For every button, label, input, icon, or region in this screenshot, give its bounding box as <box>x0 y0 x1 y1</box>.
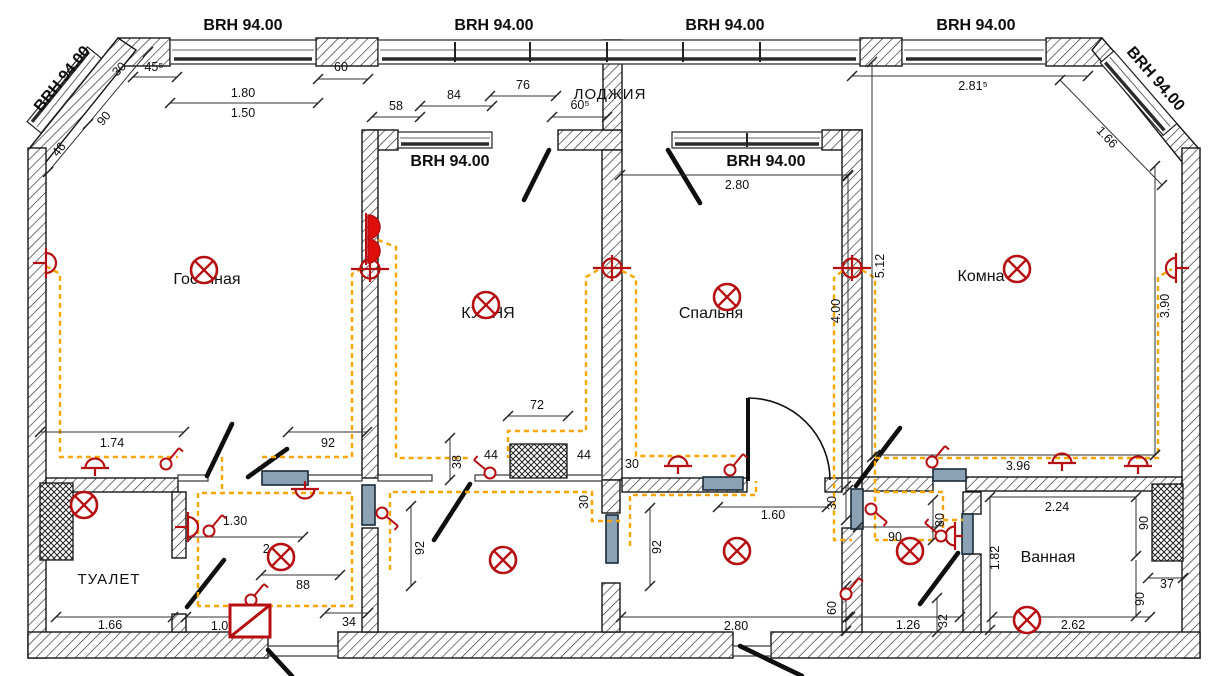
dim-label: 34 <box>342 615 356 629</box>
brh-label-top-3: BRH 94.00 <box>685 17 764 34</box>
dim-label: 60⁵ <box>570 98 589 112</box>
door-leaf-kitchen-loggia <box>524 150 549 200</box>
double-socket-icon <box>593 255 631 281</box>
dim-label: 1.60 <box>761 508 785 522</box>
ceiling-light-icon <box>714 284 740 310</box>
threshold-room <box>933 469 966 481</box>
switch-icon <box>725 454 748 476</box>
dim-label: 3.96 <box>1006 459 1030 473</box>
shaft-toilet <box>40 483 73 560</box>
dim-label: 84 <box>447 88 461 102</box>
dim-label: 44 <box>484 448 498 462</box>
dim-label: 80 <box>933 513 947 527</box>
door-arc-bedroom <box>748 398 830 480</box>
room-label-toilet: ТУАЛЕТ <box>77 571 140 588</box>
surface-socket-icon <box>1048 454 1076 472</box>
ceiling-light-icon <box>490 547 516 573</box>
door-leaf-bedroom-loggia <box>668 150 700 203</box>
dim-label: 60 <box>825 601 839 615</box>
ceiling-light-icon <box>724 538 750 564</box>
dim-label: 90 <box>94 109 114 129</box>
ceiling-light-icon <box>473 292 499 318</box>
dim-label: 1.26 <box>896 618 920 632</box>
window-room-top <box>902 40 1046 64</box>
dim-label: 32 <box>936 614 950 628</box>
dim-label: 1.80 <box>231 86 255 100</box>
dim-label: 1.82 <box>988 546 1002 570</box>
window-bedroom-loggia <box>672 132 822 148</box>
room-label-room: Комна <box>958 268 1005 285</box>
dim-label: 2.24 <box>1045 500 1069 514</box>
window-loggia-glazing <box>378 40 860 64</box>
threshold-bedroom <box>703 477 743 490</box>
dim-label: 30 <box>825 496 839 510</box>
dim-label: 1.66 <box>1094 124 1121 151</box>
surface-socket-icon <box>664 457 692 475</box>
dim-label: 5.12 <box>873 254 887 278</box>
surface-socket-icon <box>81 459 109 477</box>
dim-label: 4.00 <box>829 299 843 323</box>
dim-label: 2.62 <box>1061 618 1085 632</box>
brh-label-loggia-left: BRH 94.00 <box>410 153 489 170</box>
ceiling-light-icon <box>1014 607 1040 633</box>
threshold-hall1 <box>362 485 375 525</box>
brh-label-top-1: BRH 94.00 <box>203 17 282 34</box>
switch-icon <box>246 584 269 606</box>
ceiling-light-icon <box>268 544 294 570</box>
double-socket-icon <box>833 255 871 281</box>
dim-label: 72 <box>530 398 544 412</box>
dim-label: 60 <box>334 60 348 74</box>
door-leaf-toilet <box>187 560 224 607</box>
threshold-living <box>262 471 308 485</box>
window-kitchen-loggia <box>398 132 492 148</box>
dim-label: 58 <box>389 99 403 113</box>
dim-label: 76 <box>516 78 530 92</box>
dim-label: 2.81⁵ <box>958 79 988 93</box>
room-label-bath: Ванная <box>1021 549 1076 566</box>
floor-plan-canvas: BRH 94.00 BRH 94.00 BRH 94.00 BRH 94.00 … <box>0 0 1228 676</box>
brh-label-top-2: BRH 94.00 <box>454 17 533 34</box>
ceiling-light-icon <box>1004 256 1030 282</box>
electrical-floor-plan: BRH 94.00 BRH 94.00 BRH 94.00 BRH 94.00 … <box>0 0 1228 676</box>
dim-label: 88 <box>296 578 310 592</box>
dim-label: 90 <box>1137 516 1151 530</box>
ceiling-light-icon <box>897 538 923 564</box>
dim-label: 1.74 <box>100 436 124 450</box>
dim-label: 1.66 <box>98 618 122 632</box>
switch-icon <box>377 508 399 531</box>
shaft-bathroom <box>1152 484 1183 561</box>
dim-label: 37 <box>1160 577 1174 591</box>
dim-label: 92 <box>321 436 335 450</box>
dim-label: 30 <box>577 495 591 509</box>
switch-icon <box>866 504 888 527</box>
switch-icon <box>161 448 184 470</box>
threshold-bath <box>962 514 973 554</box>
distribution-panel-icon <box>230 605 270 637</box>
ceiling-light-icon <box>71 492 97 518</box>
dim-label: 1.50 <box>231 106 255 120</box>
dim-label: 2.80 <box>724 619 748 633</box>
switch-icon <box>927 446 950 468</box>
ceiling-light-icon <box>191 257 217 283</box>
brh-label-loggia-right: BRH 94.00 <box>726 153 805 170</box>
dim-label: 45⁵ <box>144 60 163 74</box>
dim-label: 92 <box>413 541 427 555</box>
dim-label: 3.90 <box>1158 294 1172 318</box>
dim-label: 38 <box>450 455 464 469</box>
door-leaf-living-1 <box>207 424 232 476</box>
brh-label-top-4: BRH 94.00 <box>936 17 1015 34</box>
dim-label: 90 <box>1133 592 1147 606</box>
dim-label: 2.80 <box>725 178 749 192</box>
dim-label: 1.30 <box>223 514 247 528</box>
window-living-top <box>170 40 316 64</box>
dim-label: 44 <box>577 448 591 462</box>
dim-label: 30 <box>625 457 639 471</box>
shaft-kitchen <box>510 444 567 478</box>
dim-label: 92 <box>650 540 664 554</box>
surface-socket-icon <box>946 522 964 550</box>
